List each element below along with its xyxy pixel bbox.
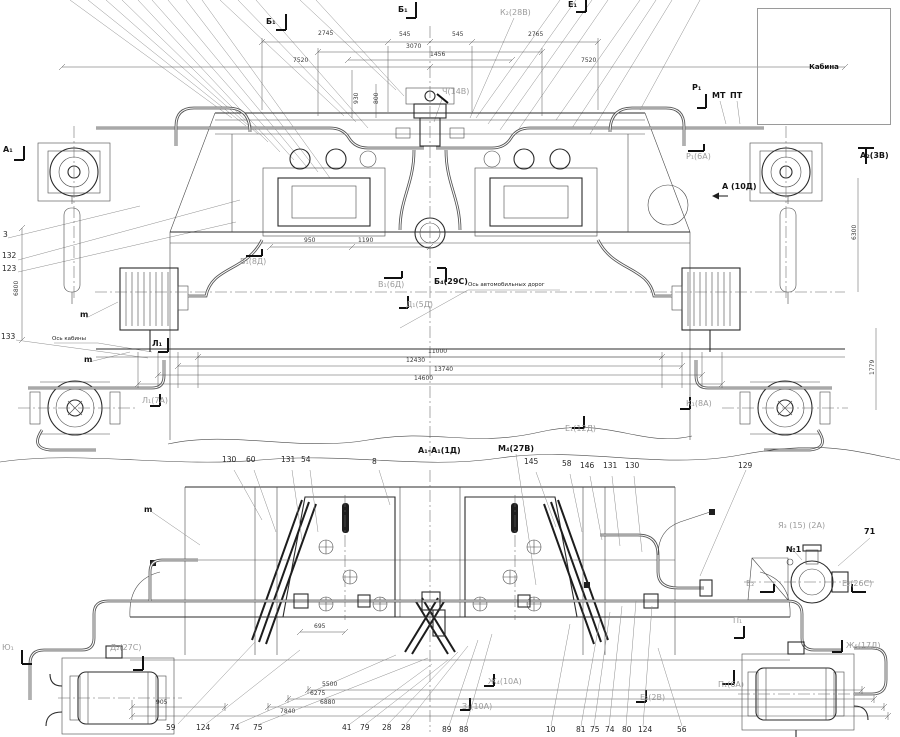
reference-label: Д₂(27С) bbox=[110, 644, 141, 652]
dimension-value: 5500 bbox=[322, 682, 337, 688]
reference-label: Ю₁ bbox=[2, 644, 14, 652]
part-callout: 130 bbox=[625, 462, 639, 470]
reference-label: П₁(6А) bbox=[718, 681, 744, 689]
part-callout: 145 bbox=[524, 458, 538, 466]
dimension-value: 6300 bbox=[852, 225, 858, 240]
section-marker: А (10Д) bbox=[722, 183, 757, 191]
part-callout: 88 bbox=[459, 726, 469, 734]
part-callout: 28 bbox=[401, 724, 411, 732]
part-callout: 89 bbox=[442, 726, 452, 734]
reference-label: Р₁(6А) bbox=[686, 153, 711, 161]
dimension-value: 14600 bbox=[414, 376, 433, 382]
reference-label: Е₂ bbox=[746, 580, 754, 588]
part-callout: 131 bbox=[281, 456, 295, 464]
dimension-value: 2765 bbox=[528, 32, 543, 38]
dimension-value: 545 bbox=[452, 32, 463, 38]
dimension-value: 7520 bbox=[581, 58, 596, 64]
reference-label: Л₁(7А) bbox=[142, 397, 168, 405]
reference-label: Е₁(12Д) bbox=[565, 425, 596, 433]
dimension-value: 13740 bbox=[434, 367, 453, 373]
dimension-value: 6275 bbox=[310, 691, 325, 697]
part-callout: 54 bbox=[301, 456, 311, 464]
reference-label: З₁(10А) bbox=[462, 703, 492, 711]
dimension-value: 695 bbox=[314, 624, 325, 630]
part-callout: 124 bbox=[638, 726, 652, 734]
part-callout: 129 bbox=[738, 462, 752, 470]
section-marker: Б₄(29С) bbox=[434, 278, 468, 286]
section-marker: m bbox=[80, 311, 88, 319]
part-callout: 28 bbox=[382, 724, 392, 732]
dimension-lines-bottom bbox=[129, 629, 891, 720]
section-marker: Б₁ bbox=[398, 6, 408, 14]
reference-label: В₁(6Д) bbox=[378, 281, 404, 289]
dimension-value: 905 bbox=[156, 700, 167, 706]
part-callout: 56 bbox=[677, 726, 687, 734]
section-marker: А₁-А₁(1Д) bbox=[418, 447, 461, 455]
section-marker: Р₁ bbox=[692, 84, 701, 92]
part-callout: 60 bbox=[246, 456, 256, 464]
dimension-value: 2745 bbox=[318, 31, 333, 37]
section-marker: m bbox=[144, 506, 152, 514]
drawing-sheet: Кабина Б₁Б₁Е₁А₁А₂(3В)А (10Д)Л₁Б₄(29С)А₁-… bbox=[0, 0, 900, 737]
dimension-value: 3070 bbox=[406, 44, 421, 50]
part-callout: 41 bbox=[342, 724, 352, 732]
reference-label: Ж₅(17Д) bbox=[846, 642, 881, 650]
section-marker: Б₁ bbox=[266, 18, 276, 26]
reference-label: Д₁(5Д) bbox=[406, 301, 433, 309]
cabin-outline-box: Кабина bbox=[757, 8, 891, 125]
part-callout: 75 bbox=[590, 726, 600, 734]
cabin-label: Кабина bbox=[809, 63, 839, 71]
section-marker: МТ bbox=[712, 92, 725, 100]
section-flags bbox=[14, 0, 874, 428]
dimension-value: 545 bbox=[399, 32, 410, 38]
part-callout: 123 bbox=[2, 265, 16, 273]
detail-sleeve-component bbox=[744, 545, 874, 603]
dimension-value: 6800 bbox=[14, 281, 20, 296]
reference-label: Ж₄(10А) bbox=[488, 678, 522, 686]
part-callout: 80 bbox=[622, 726, 632, 734]
reference-label: Е₂(2В) bbox=[640, 694, 665, 702]
part-callout: 8 bbox=[372, 458, 377, 466]
section-marker: М₄(27В) bbox=[498, 445, 534, 453]
dimension-value: 11000 bbox=[428, 349, 447, 355]
reference-label: П₁ bbox=[733, 617, 742, 625]
section-marker: m bbox=[84, 356, 92, 364]
part-callout: 146 bbox=[580, 462, 594, 470]
section-marker: Е₁ bbox=[568, 1, 577, 9]
dimension-value: 1456 bbox=[430, 52, 445, 58]
part-callout: 58 bbox=[562, 460, 572, 468]
dimension-value: 6880 bbox=[320, 700, 335, 706]
section-marker: 71 bbox=[864, 528, 875, 536]
part-callout: 124 bbox=[196, 724, 210, 732]
reference-label: Я₃ (15) (2А) bbox=[778, 522, 825, 530]
part-callout: 131 bbox=[603, 462, 617, 470]
section-marker: Л₁ bbox=[152, 340, 162, 348]
bottom-view-linework bbox=[0, 447, 900, 732]
dimension-value: 7520 bbox=[293, 58, 308, 64]
reference-label: Ч(14В) bbox=[442, 88, 469, 96]
part-callout: 132 bbox=[2, 252, 16, 260]
section-flags-bottom bbox=[22, 626, 842, 710]
part-callout: 130 bbox=[222, 456, 236, 464]
part-callout: 81 bbox=[576, 726, 586, 734]
dimension-value: 1190 bbox=[358, 238, 373, 244]
reference-label: Е₂(26С) bbox=[842, 580, 872, 588]
part-callout: 74 bbox=[605, 726, 615, 734]
reference-label: Б₁(8Д) bbox=[240, 258, 266, 266]
part-callout: 10 bbox=[546, 726, 556, 734]
note-label: Ось кабины bbox=[52, 337, 86, 343]
dimension-value: 950 bbox=[304, 238, 315, 244]
reference-label: К₁(8А) bbox=[686, 400, 712, 408]
section-marker: А₁ bbox=[3, 146, 13, 154]
part-callout: 133 bbox=[1, 333, 15, 341]
leader-lines-top bbox=[8, 0, 700, 362]
part-callout: 3 bbox=[3, 231, 8, 239]
section-marker: ПТ bbox=[730, 92, 742, 100]
section-marker: №1 bbox=[786, 546, 801, 554]
note-label: Ось автомобильных дорог bbox=[468, 283, 545, 289]
part-callout: 75 bbox=[253, 724, 263, 732]
section-marker: А₂(3В) bbox=[860, 152, 889, 160]
dimension-value: 7840 bbox=[280, 709, 295, 715]
reference-label: К₂(28В) bbox=[500, 9, 531, 17]
part-callout: 79 bbox=[360, 724, 370, 732]
dimension-value: 12430 bbox=[406, 358, 425, 364]
dimension-value: 1779 bbox=[870, 360, 876, 375]
dimension-value: 930 bbox=[354, 93, 360, 104]
part-callout: 59 bbox=[166, 724, 176, 732]
dimension-value: 800 bbox=[374, 93, 380, 104]
part-callout: 74 bbox=[230, 724, 240, 732]
